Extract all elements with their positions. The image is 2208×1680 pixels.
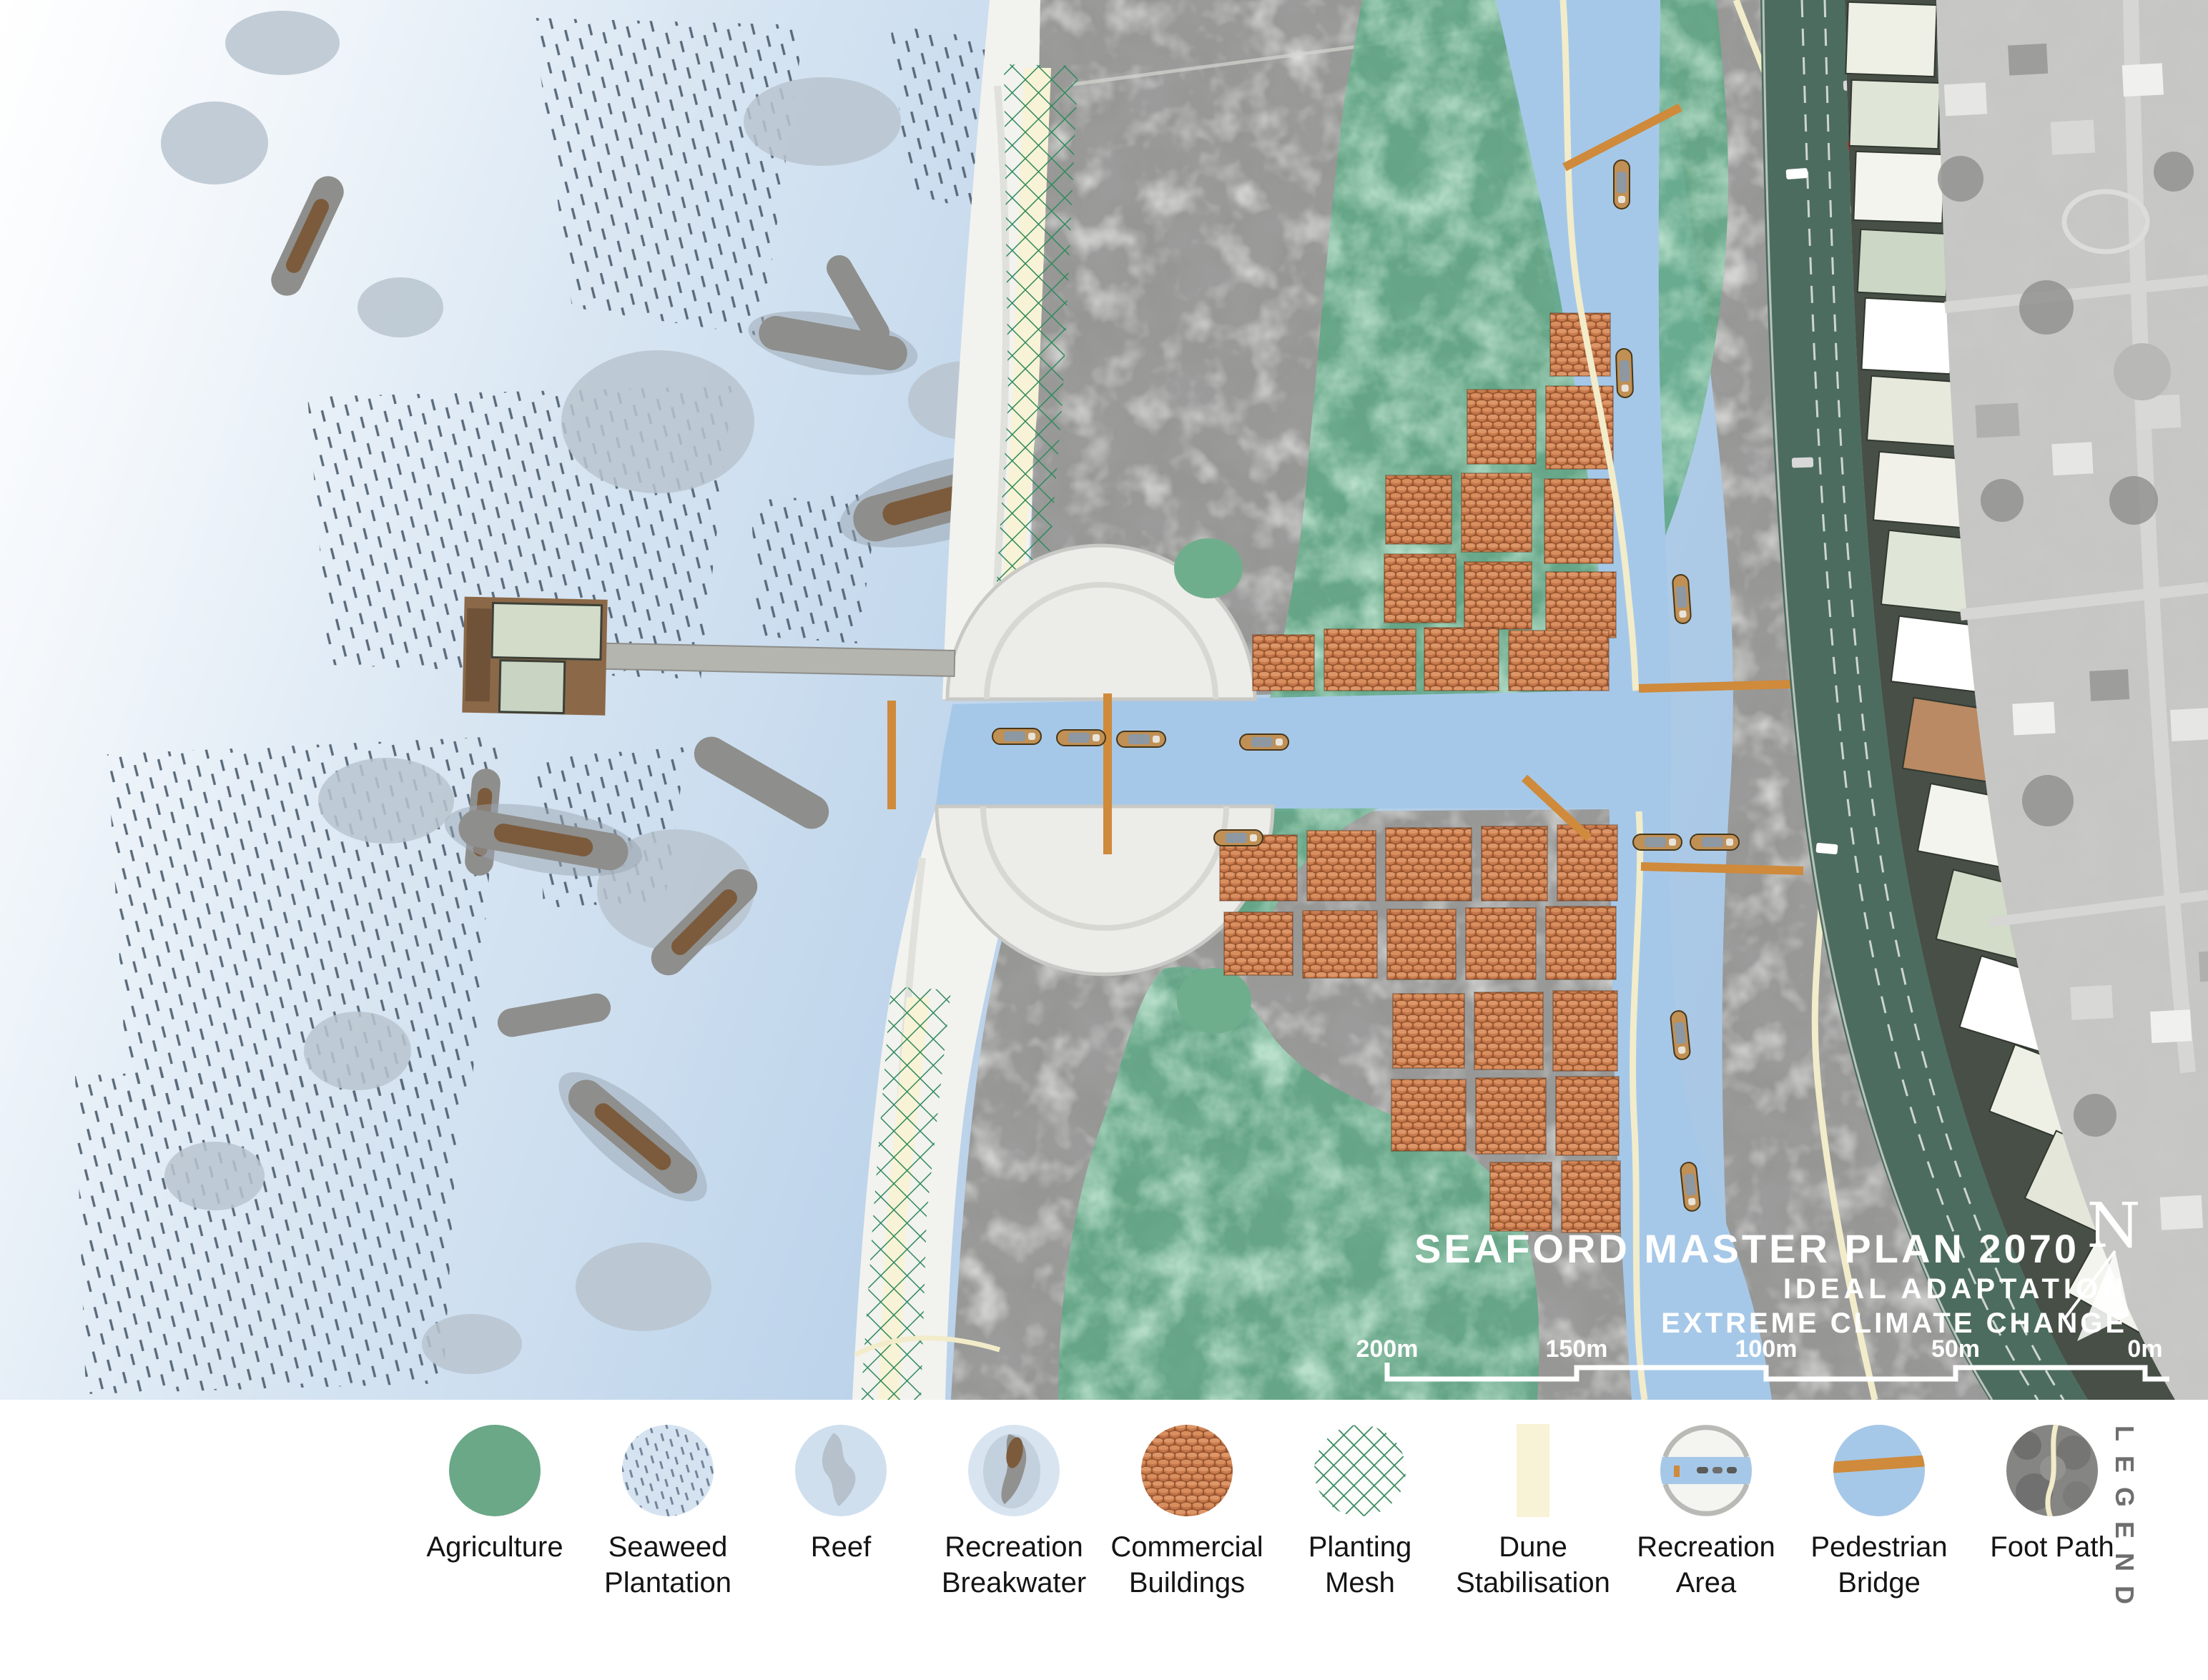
legend-item-recreation-area: Recreation Area — [1620, 1424, 1793, 1601]
boat — [1214, 830, 1263, 846]
recreation-breakwater-icon — [967, 1424, 1060, 1517]
legend-label-2: Bridge — [1793, 1565, 1966, 1601]
seaweed-plantation-icon — [621, 1424, 714, 1517]
recreation-area-icon — [1660, 1424, 1753, 1517]
reef-icon — [794, 1424, 887, 1517]
legend-label-2: Area — [1620, 1565, 1793, 1601]
scale-label-200m: 200m — [1356, 1335, 1419, 1363]
legend-item-recreation-breakwater: Recreation Breakwater — [927, 1424, 1100, 1601]
legend-label: Commercial — [1100, 1529, 1273, 1565]
legend-label-2: Stabilisation — [1446, 1565, 1620, 1601]
boat — [1672, 574, 1692, 623]
legend-label: Agriculture — [408, 1529, 581, 1565]
pedestrian-bridge — [1639, 684, 1792, 688]
boat — [1240, 734, 1288, 750]
planting-mesh-icon — [1314, 1424, 1406, 1517]
legend-item-pedestrian-bridge: Pedestrian Bridge — [1793, 1424, 1966, 1601]
pier-building — [499, 661, 564, 713]
boat — [1616, 349, 1633, 398]
seaford-master-plan-page: SEAFORD MASTER PLAN 2070 IDEAL ADAPTATIO… — [0, 0, 2208, 1680]
scale-label-0m: 0m — [2127, 1335, 2162, 1363]
pedestrian-bridge-icon — [1833, 1424, 1926, 1517]
legend-label-2: Mesh — [1273, 1565, 1446, 1601]
legend-label: Dune — [1446, 1529, 1620, 1565]
pier-building — [492, 603, 602, 659]
scale-label-50m: 50m — [1931, 1335, 1980, 1363]
legend-item-commercial-buildings: Commercial Buildings — [1100, 1424, 1273, 1601]
foot-path-icon — [2006, 1424, 2099, 1517]
legend-label-2: Plantation — [581, 1565, 754, 1601]
boat — [1614, 160, 1630, 209]
legend-label-2: Buildings — [1100, 1565, 1273, 1601]
legend: Agriculture Seaweed Plantation Reef — [0, 1400, 2208, 1680]
boat — [992, 728, 1041, 744]
boat — [1690, 834, 1739, 850]
page-title: SEAFORD MASTER PLAN 2070 — [1414, 1226, 2079, 1271]
dune-stabilisation-icon — [1487, 1424, 1579, 1517]
legend-label: Recreation — [1620, 1529, 1793, 1565]
agriculture-icon — [448, 1424, 541, 1517]
legend-label: Pedestrian — [1793, 1529, 1966, 1565]
scale-label-150m: 150m — [1546, 1335, 1608, 1363]
commercial-buildings-icon — [1140, 1424, 1233, 1517]
legend-item-agriculture: Agriculture — [408, 1424, 581, 1565]
map-canvas: SEAFORD MASTER PLAN 2070 IDEAL ADAPTATIO… — [0, 0, 2208, 1400]
legend-label: Reef — [754, 1529, 927, 1565]
legend-heading: LEGEND — [2109, 1425, 2139, 1619]
legend-item-reef: Reef — [754, 1424, 927, 1565]
pedestrian-bridge — [1641, 866, 1803, 871]
subtitle-line2: EXTREME CLIMATE CHANGE — [1661, 1308, 2127, 1339]
boat — [1057, 730, 1105, 746]
legend-item-dune-stabilisation: Dune Stabilisation — [1446, 1424, 1620, 1601]
subtitle-line1: IDEAL ADAPTATION — [1783, 1273, 2127, 1305]
master-plan-map: SEAFORD MASTER PLAN 2070 IDEAL ADAPTATIO… — [0, 0, 2208, 1400]
legend-label: Planting — [1273, 1529, 1446, 1565]
legend-label: Recreation — [927, 1529, 1100, 1565]
boat — [1633, 834, 1682, 850]
scale-label-100m: 100m — [1735, 1335, 1798, 1363]
legend-label: Seaweed — [581, 1529, 754, 1565]
legend-label-2: Breakwater — [927, 1565, 1100, 1601]
legend-item-seaweed-plantation: Seaweed Plantation — [581, 1424, 754, 1601]
legend-item-planting-mesh: Planting Mesh — [1273, 1424, 1446, 1601]
boat — [1117, 731, 1165, 747]
